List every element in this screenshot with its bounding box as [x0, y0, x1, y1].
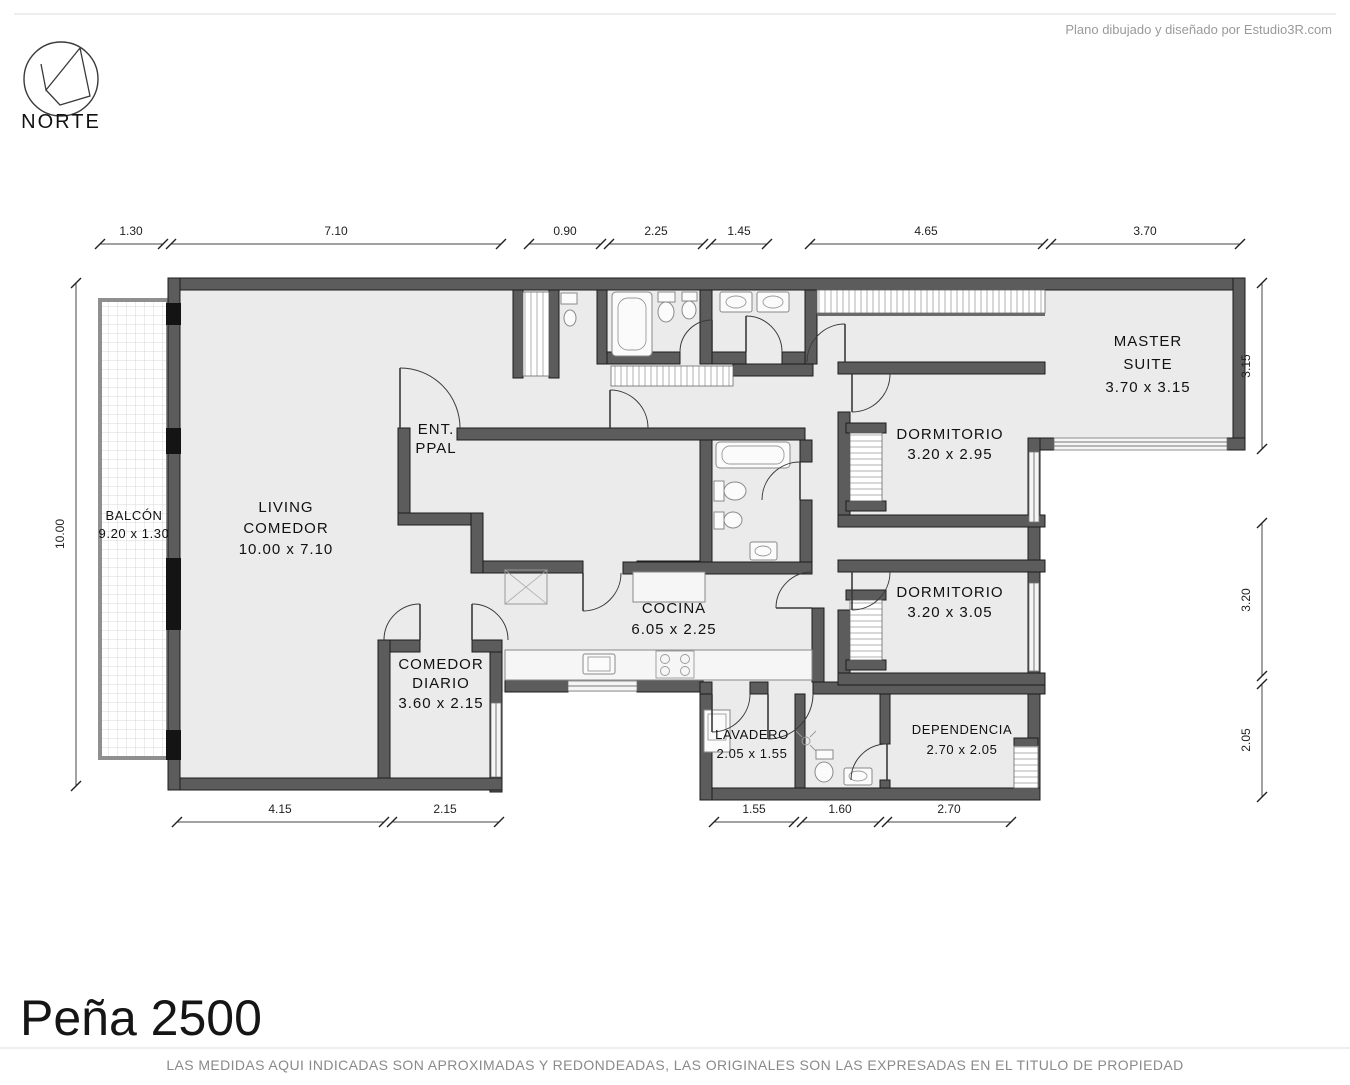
wall — [712, 352, 746, 364]
wall — [483, 561, 583, 573]
bidet-icon — [714, 512, 724, 529]
wall — [398, 428, 410, 525]
window-frame — [166, 303, 181, 325]
room-label-dependencia: DEPENDENCIA — [912, 722, 1013, 737]
dim-top-4: 2.25 — [644, 224, 668, 238]
dim-left-1: 10.00 — [53, 519, 67, 549]
window-frame — [166, 558, 181, 630]
wall — [471, 513, 483, 573]
wall — [398, 513, 483, 525]
sink-icon — [757, 292, 789, 312]
closet-divider — [817, 313, 1045, 316]
sink-icon — [750, 542, 777, 560]
closet-cap — [846, 423, 886, 433]
dim-top-3: 0.90 — [553, 224, 577, 238]
wall — [513, 290, 523, 378]
wall — [880, 780, 890, 788]
dim-top-7: 3.70 — [1133, 224, 1157, 238]
dim-bottom-left-2: 2.15 — [433, 802, 457, 816]
wall — [549, 290, 559, 378]
closet-dormitorio2 — [850, 600, 882, 660]
dim-bottom-right-1: 1.55 — [742, 802, 766, 816]
wall — [597, 290, 607, 364]
toilet-icon — [564, 310, 576, 326]
room-label-master: MASTER — [1114, 333, 1183, 350]
wall — [838, 673, 1045, 685]
room-label-cocina: COCINA — [642, 600, 706, 617]
toilet-icon — [816, 750, 833, 759]
kitchen-counter — [633, 572, 705, 602]
toilet-icon — [714, 481, 724, 501]
dim-top-6: 4.65 — [914, 224, 938, 238]
room-label-comedor-diario: COMEDOR — [398, 656, 483, 673]
wall — [805, 290, 817, 364]
kitchen-counter — [505, 650, 812, 680]
wall — [795, 694, 805, 788]
wall — [700, 290, 712, 364]
dim-right-1: 3.15 — [1239, 354, 1253, 378]
plan-title: Peña 2500 — [20, 990, 262, 1046]
wall — [838, 610, 850, 682]
wall — [880, 694, 890, 744]
wall — [472, 640, 502, 652]
window-frame — [166, 730, 181, 760]
sink-icon — [561, 293, 577, 304]
room-label-balcon: BALCÓN — [105, 508, 162, 523]
closet-cap — [846, 501, 886, 511]
room-label-living: LIVING — [258, 499, 313, 516]
window-frame — [166, 428, 181, 454]
wall — [1040, 438, 1054, 450]
dim-top-1: 1.30 — [119, 224, 143, 238]
closet-master — [817, 290, 1045, 313]
closet-corridor — [611, 366, 733, 386]
wall — [637, 680, 703, 692]
floor-plan-sheet: Plano dibujado y diseñado por Estudio3R.… — [0, 0, 1350, 1080]
attribution-text: Plano dibujado y diseñado por Estudio3R.… — [1065, 22, 1332, 37]
dim-bottom-right-2: 1.60 — [828, 802, 852, 816]
dim-top-2: 7.10 — [324, 224, 348, 238]
window-master — [1054, 438, 1227, 450]
toilet-icon — [658, 292, 675, 302]
room-label-lavadero: LAVADERO — [715, 727, 789, 742]
closet-dependencia — [1014, 746, 1038, 788]
room-dims-dormitorio2: 3.20 x 3.05 — [907, 604, 992, 621]
wall — [700, 682, 712, 694]
wall — [838, 362, 1045, 374]
wall — [457, 428, 805, 440]
disclaimer-text: LAS MEDIDAS AQUI INDICADAS SON APROXIMAD… — [166, 1057, 1183, 1073]
north-label: NORTE — [21, 111, 101, 133]
room-dims-living: 10.00 x 7.10 — [239, 541, 334, 558]
room-label-comedor-diario2: DIARIO — [412, 675, 470, 692]
wall — [168, 778, 502, 790]
north-compass-icon — [24, 42, 98, 116]
room-dims-dependencia: 2.70 x 2.05 — [927, 742, 998, 757]
wall — [378, 640, 390, 790]
closet-cap — [846, 660, 886, 670]
closet-cap — [1014, 738, 1038, 746]
wall — [168, 278, 180, 790]
dim-right-3: 2.05 — [1239, 728, 1253, 752]
room-dims-comedor-diario: 3.60 x 2.15 — [398, 695, 483, 712]
room-label-entrada: ENT. — [418, 421, 455, 438]
wall — [750, 682, 768, 694]
room-label-living2: COMEDOR — [243, 520, 328, 537]
room-dims-dormitorio1: 3.20 x 2.95 — [907, 446, 992, 463]
wall — [800, 440, 812, 462]
wall — [838, 515, 1045, 527]
room-dims-master: 3.70 x 3.15 — [1105, 379, 1190, 396]
wall — [838, 560, 1045, 572]
wall — [812, 608, 824, 682]
wall — [733, 364, 813, 376]
wall — [700, 788, 1040, 800]
dim-top-5: 1.45 — [727, 224, 751, 238]
room-label-master2: SUITE — [1123, 356, 1172, 373]
dim-right-2: 3.20 — [1239, 588, 1253, 612]
closet-hall — [523, 292, 549, 376]
wall — [168, 278, 1245, 290]
wall — [390, 640, 420, 652]
room-dims-lavadero: 2.05 x 1.55 — [717, 746, 788, 761]
room-label-dormitorio2: DORMITORIO — [896, 584, 1003, 601]
closet-dormitorio1 — [850, 433, 882, 501]
bidet-icon — [682, 292, 697, 301]
room-dims-balcon: 9.20 x 1.30 — [99, 526, 170, 541]
room-label-entrada2: PPAL — [415, 440, 456, 457]
wall — [700, 440, 712, 574]
wall — [1227, 438, 1245, 450]
room-dims-cocina: 6.05 x 2.25 — [631, 621, 716, 638]
dim-bottom-right-3: 2.70 — [937, 802, 961, 816]
wall — [505, 680, 568, 692]
room-label-dormitorio1: DORMITORIO — [896, 426, 1003, 443]
dim-bottom-left-1: 4.15 — [268, 802, 292, 816]
sink-icon — [720, 292, 752, 312]
